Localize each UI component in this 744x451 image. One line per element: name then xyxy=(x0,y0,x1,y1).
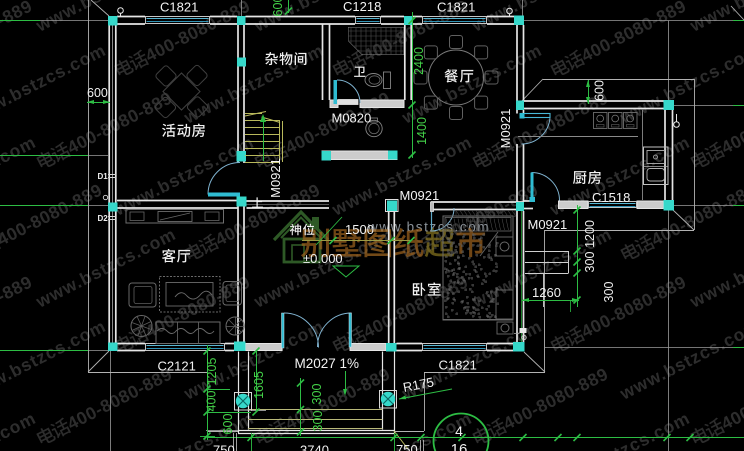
svg-text:M0921: M0921 xyxy=(498,109,513,149)
svg-text:M0921: M0921 xyxy=(400,188,440,203)
svg-text:300: 300 xyxy=(602,282,616,303)
svg-text:300: 300 xyxy=(311,411,325,432)
svg-text:±0.000: ±0.000 xyxy=(303,251,343,266)
svg-text:1205: 1205 xyxy=(205,358,219,386)
svg-text:C1518: C1518 xyxy=(592,190,630,205)
svg-text:300: 300 xyxy=(310,384,324,405)
svg-text:600: 600 xyxy=(87,86,108,100)
svg-text:400: 400 xyxy=(205,391,219,412)
svg-text:M0820: M0820 xyxy=(332,111,372,126)
svg-text:M0921: M0921 xyxy=(528,217,568,232)
svg-text:1605: 1605 xyxy=(252,371,266,399)
svg-text:C1821: C1821 xyxy=(160,0,198,15)
svg-text:600: 600 xyxy=(221,414,235,435)
svg-text:2400: 2400 xyxy=(412,47,426,75)
svg-text:C1218: C1218 xyxy=(343,0,381,14)
svg-text:600: 600 xyxy=(593,80,607,101)
svg-text:1200: 1200 xyxy=(583,220,597,248)
svg-text:1400: 1400 xyxy=(415,117,429,145)
svg-text:D1: D1 xyxy=(98,172,109,181)
svg-text:750: 750 xyxy=(213,443,235,451)
svg-text:4: 4 xyxy=(455,423,463,439)
svg-text:C1821: C1821 xyxy=(437,0,475,15)
svg-text:M2027 1%: M2027 1% xyxy=(295,356,360,371)
svg-text:16: 16 xyxy=(451,441,468,451)
svg-text:3740: 3740 xyxy=(300,443,329,451)
svg-text:300: 300 xyxy=(583,252,597,273)
svg-text:1500: 1500 xyxy=(345,222,374,237)
svg-text:750: 750 xyxy=(396,442,418,451)
svg-text:D2: D2 xyxy=(98,214,109,223)
svg-text:C1821: C1821 xyxy=(439,358,477,373)
svg-text:M0921: M0921 xyxy=(268,158,283,198)
svg-text:C2121: C2121 xyxy=(158,359,196,374)
svg-text:1260: 1260 xyxy=(532,285,561,300)
svg-text:600: 600 xyxy=(271,0,285,16)
